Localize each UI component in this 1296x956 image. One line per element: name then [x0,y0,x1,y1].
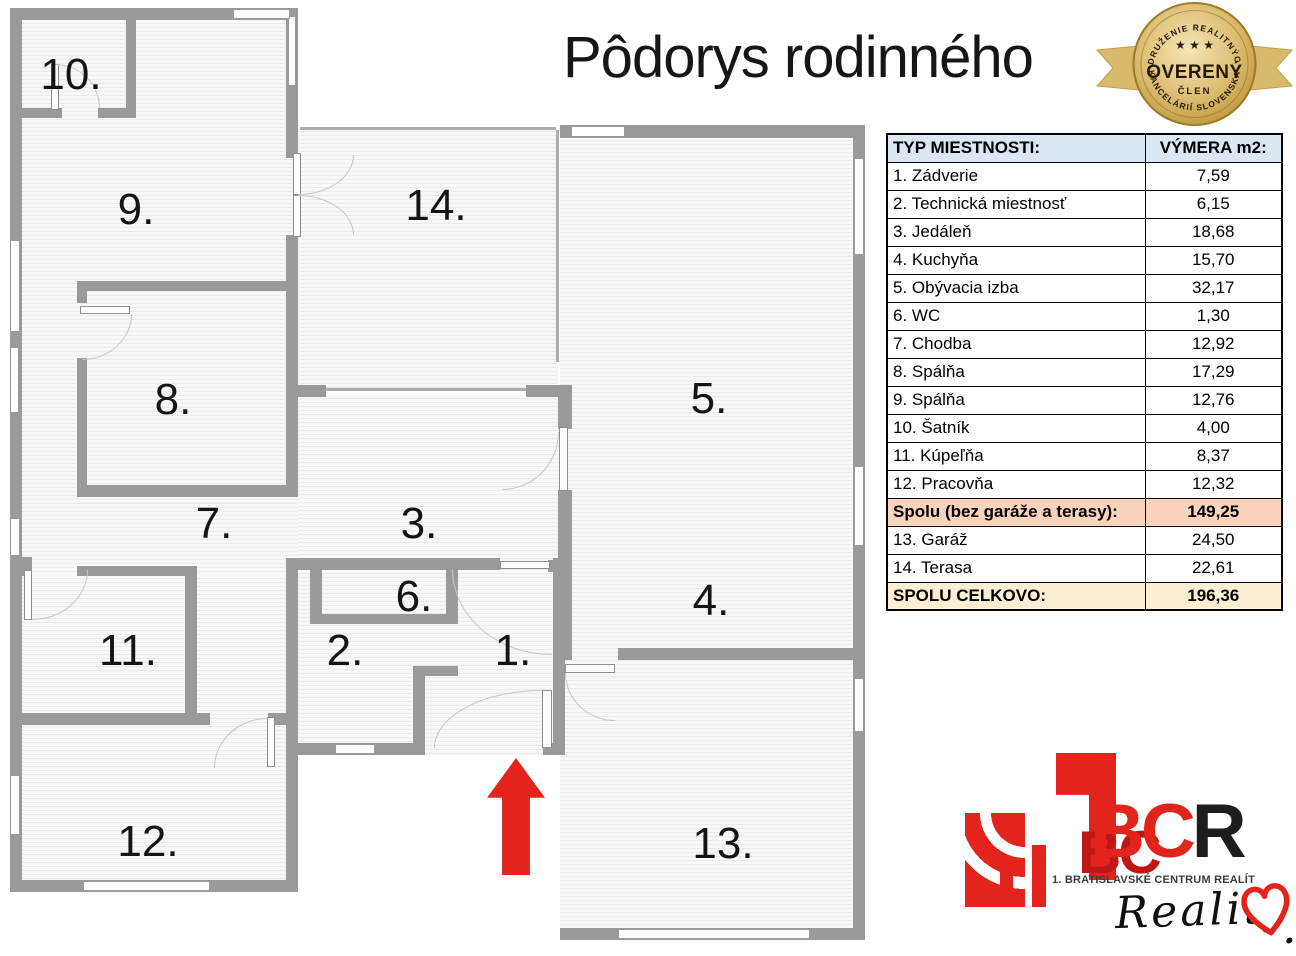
wall [77,358,87,485]
floor-plan: 1. 2. 3. 4. 5. 6. 7. 8. 9. 10. 11. 12. 1… [0,0,880,956]
table-row: 14. Terasa22,61 [887,554,1282,582]
page-title: Pôdorys rodinného [563,24,1033,91]
window [335,744,375,754]
bcr-bar-icon [1032,845,1046,907]
terrace-edge-line [556,130,559,362]
room-area-cell: 7,59 [1145,162,1282,190]
table-header-area: VÝMERA m2: [1145,134,1282,162]
wall [398,743,418,755]
wall [310,568,322,624]
wall [558,395,572,429]
window [618,929,810,939]
table-row: 2. Technická miestnosť6,15 [887,190,1282,218]
wall [526,385,572,397]
table-row: 9. Spálňa12,76 [887,386,1282,414]
wall [185,566,197,725]
window [233,9,290,19]
bcr-logo-bc: BC [1090,789,1192,874]
window [854,158,864,255]
door-leaf [565,664,615,673]
room-type-cell: 3. Jedáleň [887,218,1145,246]
wall [286,395,298,497]
entrance-arrow-icon [487,758,545,875]
room-type-cell: 1. Zádverie [887,162,1145,190]
room-type-cell: 13. Garáž [887,526,1145,554]
table-row: 12. Pracovňa12,32 [887,470,1282,498]
room-label-6: 6. [396,572,433,622]
room-label-2: 2. [327,626,364,676]
window [571,126,625,137]
room-label-14: 14. [405,181,466,231]
table-row: 1. Zádverie7,59 [887,162,1282,190]
room-area-cell: 22,61 [1145,554,1282,582]
wall [558,490,572,560]
table-row: 4. Kuchyňa15,70 [887,246,1282,274]
room-label-9: 9. [118,185,155,235]
room-label-8: 8. [155,375,192,425]
room-area-cell: 1,30 [1145,302,1282,330]
room-label-13: 13. [692,819,753,869]
bcr-logo-r: R [1192,789,1243,874]
bcr-fan-logo-icon [965,813,1025,907]
room-area-cell: 17,29 [1145,358,1282,386]
room-label-4: 4. [693,576,730,626]
terrace-edge-line [300,127,556,130]
room-label-7: 7. [196,499,233,549]
room-type-cell: 4. Kuchyňa [887,246,1145,274]
door-leaf [267,717,275,767]
room-area-cell: 4,00 [1145,414,1282,442]
room-type-cell: 6. WC [887,302,1145,330]
room-type-cell: 14. Terasa [887,554,1145,582]
room-area-cell: 8,37 [1145,442,1282,470]
badge-center-text: OVERENÝ [1146,61,1242,83]
badge-sub-text: ČLEN [1178,85,1212,97]
room-label-11: 11. [99,626,157,676]
room-area-cell: 24,50 [1145,526,1282,554]
wall [10,8,22,892]
room-label-5: 5. [691,374,728,424]
room-type-cell: 10. Šatník [887,414,1145,442]
door-leaf [500,561,550,569]
table-header-row: TYP MIESTNOSTI: VÝMERA m2: [887,134,1282,162]
wall [77,281,298,291]
room-area-cell: 149,25 [1145,498,1282,526]
table-row: 3. Jedáleň18,68 [887,218,1282,246]
bcr-logo: BCR [1090,788,1243,875]
room-area-cell: 18,68 [1145,218,1282,246]
table-row: 13. Garáž24,50 [887,526,1282,554]
window [854,678,864,732]
window [10,518,20,556]
wall [618,648,865,660]
door-leaf [542,690,552,748]
table-row: 8. Spálňa17,29 [887,358,1282,386]
room-type-cell: SPOLU CELKOVO: [887,582,1145,610]
area-table: TYP MIESTNOSTI: VÝMERA m2: 1. Zádverie7,… [886,133,1283,611]
room-type-cell: 8. Spálňa [887,358,1145,386]
room-type-cell: 12. Pracovňa [887,470,1145,498]
room-type-cell: Spolu (bez garáže a terasy): [887,498,1145,526]
window [10,775,20,835]
window [288,16,296,86]
room-area-cell: 12,92 [1145,330,1282,358]
wall [558,560,572,660]
room-area-cell: 6,15 [1145,190,1282,218]
room-type-cell: 5. Obývacia izba [887,274,1145,302]
wall [10,713,210,725]
table-row: 10. Šatník4,00 [887,414,1282,442]
reality-period: . [1282,900,1296,954]
wall [310,614,458,624]
verified-badge: ZDRUŽENIE REALITNÝCH KANCELÁRIÍ SLOVENSK… [1093,0,1296,138]
room-area-cell: 15,70 [1145,246,1282,274]
room-floor [560,125,865,940]
wall [413,666,425,755]
room-type-cell: 11. Kúpeľňa [887,442,1145,470]
bcr-bar-icon [1000,870,1013,907]
window [10,240,20,332]
wall [286,235,298,397]
room-label-10: 10. [40,50,101,100]
badge-stars-icon: ★ ★ ★ [1175,38,1214,52]
table-row: 11. Kúpeľňa8,37 [887,442,1282,470]
room-area-cell: 32,17 [1145,274,1282,302]
room-area-cell: 196,36 [1145,582,1282,610]
wall [77,566,192,576]
room-label-3: 3. [401,499,438,549]
flyer-page: 1. 2. 3. 4. 5. 6. 7. 8. 9. 10. 11. 12. 1… [0,0,1296,956]
room-area-cell: 12,76 [1145,386,1282,414]
window [83,881,210,891]
door-leaf [559,427,568,491]
table-row: 6. WC1,30 [887,302,1282,330]
door-leaf [24,570,32,620]
table-row: 5. Obývacia izba32,17 [887,274,1282,302]
room-label-12: 12. [117,817,178,867]
wall [77,485,298,497]
room-type-cell: 7. Chodba [887,330,1145,358]
room-label-1: 1. [495,626,532,676]
table-row: 7. Chodba12,92 [887,330,1282,358]
room-type-cell: 9. Spálňa [887,386,1145,414]
window [854,466,864,546]
wall [560,648,570,660]
table-row: Spolu (bez garáže a terasy):149,25 [887,498,1282,526]
room-area-cell: 12,32 [1145,470,1282,498]
terrace-edge-line [326,388,526,391]
table-row: SPOLU CELKOVO:196,36 [887,582,1282,610]
door-leaf [80,306,130,314]
table-header-type: TYP MIESTNOSTI: [887,134,1145,162]
wall [126,8,136,118]
window [10,347,19,413]
room-type-cell: 2. Technická miestnosť [887,190,1145,218]
wall [286,713,298,892]
